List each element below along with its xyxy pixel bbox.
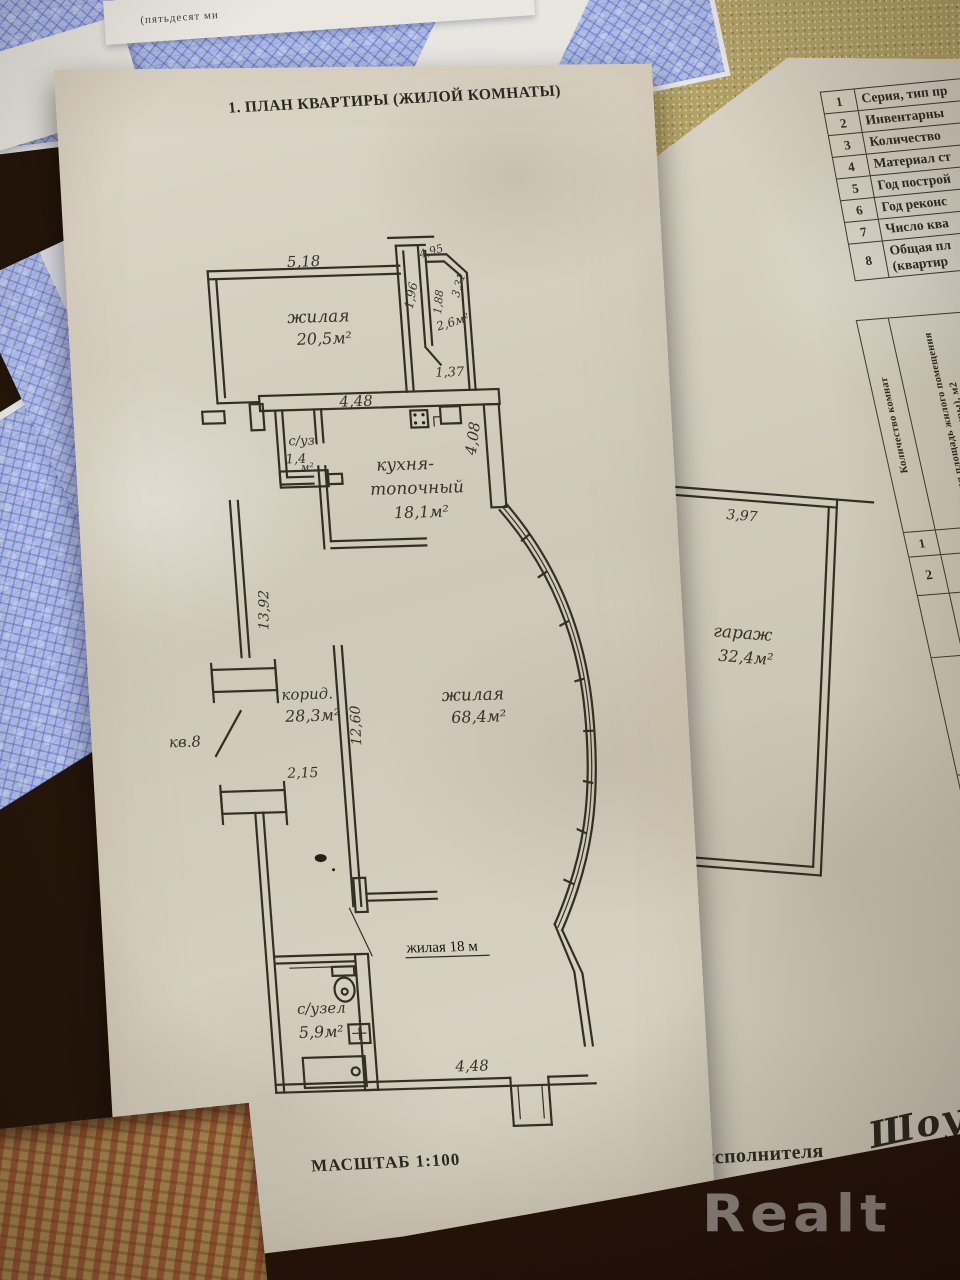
ink-dot — [332, 868, 335, 871]
dim-4-48-kitchen: 4,48 — [338, 392, 374, 411]
dim-1-37: 1,37 — [435, 365, 466, 381]
bay-window-wall — [499, 503, 618, 1047]
empty-row — [918, 587, 960, 658]
row-number: 2 — [825, 111, 863, 135]
typed-room-note: жилая 18 м — [405, 939, 479, 957]
dim-4-48-bottom: 4,48 — [454, 1056, 490, 1075]
dim-13-92: 13,92 — [256, 590, 272, 631]
kitchen-area: 18,1м² — [393, 502, 450, 523]
floor-plan-page: 1. ПЛАН КВАРТИРЫ (ЖИЛОЙ КОМНАТЫ) — [54, 64, 719, 1272]
living1-area: 20,5м² — [295, 328, 353, 349]
wc1-walls — [275, 409, 347, 550]
dim-5-18: 5,18 — [286, 252, 321, 271]
wicker-surface — [0, 1103, 270, 1280]
stove-icon — [410, 410, 428, 427]
wc1-unit: м² — [300, 461, 314, 474]
living2-area: 68,4м² — [450, 706, 507, 727]
floor-plan-drawing: жилая 20,5м² 5,18 4,95 1,96 1,88 3,31 2,… — [54, 64, 719, 1272]
kitchen-label-2: топочный — [369, 477, 464, 500]
apartment-number: кв.8 — [168, 732, 201, 751]
kitchen-walls — [201, 389, 510, 552]
building-info-table: 1 Серия, тип пр 2 Инвентарны 3 Количеств… — [820, 66, 960, 281]
kitchen-label-1: кухня- — [376, 454, 435, 476]
dim-garage-width: 3,97 — [726, 507, 758, 525]
toilet-icon — [332, 966, 357, 1002]
bottom-wall — [276, 1075, 599, 1132]
corridor-area: 28,3м² — [283, 705, 341, 726]
row-number: 5 — [837, 176, 875, 200]
dim-12-60: 12,60 — [348, 705, 366, 745]
living1-label: жилая — [286, 306, 350, 328]
corridor-label: корид. — [281, 684, 334, 704]
row-number: 7 — [845, 220, 883, 244]
photo-scene: (пятьдесят ми РЕС ГОСУДАРС УЩЕСТВА, твен… — [0, 0, 960, 1280]
wc1-label: с/уз. — [288, 433, 319, 449]
ink-blot — [314, 854, 327, 862]
row-number: 3 — [829, 133, 867, 157]
bathroom-area: 5,9м² — [298, 1022, 344, 1042]
realt-watermark: Realt — [702, 1185, 892, 1245]
garage-label: гараж — [713, 621, 773, 646]
garage-area-label: 32,4м² — [718, 646, 774, 669]
dim-2-15: 2,15 — [286, 765, 319, 782]
col-num-cell: 1 — [904, 530, 941, 556]
sink-icon — [433, 406, 461, 426]
living2-label: жилая — [441, 684, 505, 706]
row-number: 4 — [833, 155, 871, 179]
dim-1-96: 1,96 — [402, 280, 421, 310]
row-number: 6 — [841, 198, 879, 222]
letter-row: Л — [932, 649, 960, 776]
dim-4-08: 4,08 — [462, 420, 484, 457]
leader-line — [349, 908, 372, 957]
row-number: 1 — [821, 89, 859, 113]
dim-1-88: 1,88 — [431, 289, 446, 315]
bathroom-label: с/узел — [296, 999, 346, 1018]
dim-3-31: 3,31 — [449, 272, 468, 299]
